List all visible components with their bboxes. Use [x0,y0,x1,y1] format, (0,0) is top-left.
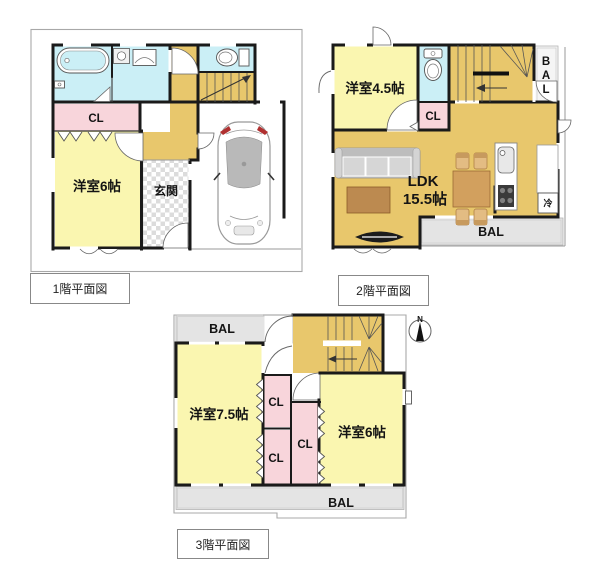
window-swing-left [319,71,331,93]
floor2-caption-text: 2階平面図 [356,282,411,299]
floor1-caption: 1階平面図 [30,273,130,304]
balcony-top-label: BAL [209,322,235,336]
closet-c-label: CL [297,439,312,451]
closet-b-label: CL [268,453,283,465]
coffee-table [347,187,390,213]
floor1-plan: 洋室6帖 玄関 CL [30,28,305,273]
stove-icon [498,185,514,207]
balcony-side-letter: B [542,56,550,68]
floorplan-page: 洋室6帖 玄関 CL [0,0,600,585]
western-room-1f-label: 洋室6帖 [73,178,122,194]
shutter-bump [373,249,391,253]
kitchen-sink-icon [498,147,514,173]
ldk-label: LDK [408,173,439,190]
floor3-plan: BAL 洋室7.5帖 洋室6帖 CL CL CL BAL [173,313,413,523]
closet-1f-label: CL [88,113,103,125]
compass: N [402,312,438,348]
floor1-caption-text: 1階平面図 [53,280,108,297]
floor2-plan: 洋室4.5帖 LDK 15.5帖 CL B A L BAL 冷 [315,25,570,250]
sink-icon [114,49,157,66]
dining-table [453,171,490,207]
window-shutter-right [406,391,412,404]
western-room-2f-label: 洋室4.5帖 [345,80,405,96]
floor3-caption-text: 3階平面図 [196,536,251,553]
window-swing-right [558,120,571,133]
door-exterior-top [373,27,391,45]
closet-a-label: CL [268,397,283,409]
balcony-side-letter: A [542,70,550,82]
closet-2f-label: CL [425,111,440,123]
toilet-icon-2f [424,49,442,81]
toilet-icon-1f [217,49,250,66]
balcony-bottom-3f-label: BAL [328,496,354,510]
car-icon [214,122,274,244]
balcony-bottom-3f [176,487,404,510]
kitchen-back-counter [537,145,558,193]
balcony-bottom-2f-label: BAL [478,225,504,239]
compass-north-label: N [417,315,423,324]
floor2-caption: 2階平面図 [338,275,429,306]
refrigerator-label: 冷 [543,198,552,209]
shutter-bump [354,249,372,253]
floor3-caption: 3階平面図 [177,529,269,559]
ldk-size-label: 15.5帖 [403,190,447,208]
balcony-side-letter: L [542,84,549,96]
western-room-right-label: 洋室6帖 [338,424,387,440]
western-room-left-label: 洋室7.5帖 [189,406,249,422]
hall-3f [293,315,320,373]
entrance-label: 玄関 [154,183,178,198]
